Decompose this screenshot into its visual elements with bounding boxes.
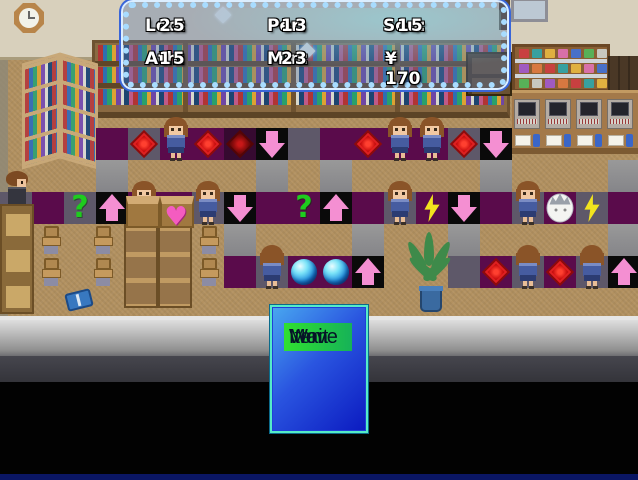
shelf-item	[519, 79, 529, 88]
lightning-bolt-icon	[423, 194, 441, 222]
student-sprite	[196, 181, 220, 225]
shelf-item	[558, 79, 568, 88]
shelf-item	[584, 64, 594, 73]
angled-bookshelf	[22, 58, 98, 172]
shelf-item	[545, 49, 555, 58]
bottom-border	[0, 474, 638, 480]
merchandise-shelf	[512, 44, 610, 92]
school-desk	[126, 196, 160, 228]
stat-value: 25	[159, 16, 187, 36]
school-chair	[198, 226, 222, 256]
path-connector-tile	[608, 160, 638, 192]
game-screen: Loo: 25 Per: 13 Sou: 15 Ath: 15 Min: 23 …	[0, 0, 638, 480]
pink-down-arrow-icon	[258, 130, 286, 158]
board-tile	[576, 192, 608, 224]
sky-window	[511, 0, 548, 22]
bottle-item	[533, 134, 540, 147]
shelf-item	[597, 49, 607, 58]
paper-stack	[515, 135, 531, 146]
red-diamond-icon	[130, 130, 158, 158]
shelf-item	[545, 64, 555, 73]
computer-kiosk	[514, 99, 540, 129]
board-tile	[288, 128, 320, 160]
left-cabinet	[0, 204, 34, 314]
student-sprite-back	[580, 245, 604, 289]
menu-item-label: Item	[289, 325, 328, 349]
board-tile	[448, 192, 480, 224]
potted-plant	[408, 230, 454, 316]
green-question-icon: ?	[295, 193, 312, 223]
pink-down-arrow-icon	[482, 130, 510, 158]
school-chair	[92, 226, 116, 256]
board-tile	[480, 128, 512, 160]
red-diamond-icon	[194, 130, 222, 158]
shelf-item	[532, 79, 542, 88]
student-sprite	[388, 181, 412, 225]
board-tile	[192, 128, 224, 160]
paper-stack	[546, 135, 562, 146]
pink-down-arrow-icon	[450, 194, 478, 222]
money-value: ¥ 170	[385, 49, 420, 89]
path-connector-tile	[96, 160, 128, 192]
shelf-item	[519, 64, 529, 73]
path-connector-tile	[256, 160, 288, 192]
red-diamond-icon	[354, 130, 382, 158]
board-tile	[96, 128, 128, 160]
pink-heart-icon: ♥	[164, 204, 187, 230]
computer-kiosk	[607, 99, 633, 129]
shelf-item	[519, 49, 529, 58]
board-tile	[320, 128, 352, 160]
board-tile	[480, 192, 512, 224]
stat-value: 23	[281, 49, 309, 69]
white-face-icon	[547, 194, 574, 223]
board-tile	[224, 256, 256, 288]
student-sprite	[420, 117, 444, 161]
paper-stack	[608, 135, 624, 146]
lightning-bolt-icon	[583, 194, 601, 222]
shelf-item	[584, 79, 594, 88]
pink-up-arrow-icon	[610, 258, 638, 286]
board-tile	[32, 192, 64, 224]
board-tile	[288, 256, 320, 288]
path-connector-tile	[608, 224, 638, 256]
shelf-item	[545, 79, 555, 88]
pink-up-arrow-icon	[322, 194, 350, 222]
path-connector-tile	[480, 160, 512, 192]
board-tile	[608, 192, 638, 224]
pink-up-arrow-icon	[354, 258, 382, 286]
shelf-item	[597, 64, 607, 73]
student-sprite-back	[260, 245, 284, 289]
student-sprite	[164, 117, 188, 161]
shelf-item	[571, 49, 581, 58]
board-tile	[544, 192, 576, 224]
wall-clock-icon	[14, 3, 44, 33]
pink-up-arrow-icon	[98, 194, 126, 222]
student-sprite-back	[516, 245, 540, 289]
machine-counter	[512, 90, 638, 154]
green-question-icon: ?	[71, 193, 88, 223]
computer-kiosk	[545, 99, 571, 129]
dark-red-diamond-icon	[226, 130, 254, 158]
shelf-item	[584, 49, 594, 58]
board-tile	[352, 256, 384, 288]
board-tile	[608, 256, 638, 288]
path-connector-tile	[352, 224, 384, 256]
shelf-item	[571, 79, 581, 88]
shelf-item	[532, 49, 542, 58]
school-chair	[40, 226, 64, 256]
board-tile: ?	[64, 192, 96, 224]
board-tile	[128, 128, 160, 160]
board-tile	[96, 192, 128, 224]
school-chair	[198, 258, 222, 288]
board-tile	[416, 192, 448, 224]
pink-down-arrow-icon	[226, 194, 254, 222]
bottle-item	[626, 134, 633, 147]
board-tile	[320, 192, 352, 224]
student-sprite	[516, 181, 540, 225]
shelf-item	[532, 64, 542, 73]
board-tile	[352, 128, 384, 160]
board-tile	[544, 256, 576, 288]
path-connector-tile	[224, 224, 256, 256]
board-tile	[448, 128, 480, 160]
board-tile	[320, 256, 352, 288]
path-connector-tile	[320, 160, 352, 192]
school-chair	[92, 258, 116, 288]
stat-value: 15	[159, 49, 187, 69]
paper-stack	[577, 135, 593, 146]
board-tile: ?	[288, 192, 320, 224]
red-diamond-icon	[450, 130, 478, 158]
school-chair	[40, 258, 64, 288]
blue-orb-icon	[323, 259, 349, 285]
board-tile	[224, 192, 256, 224]
board-tile	[256, 128, 288, 160]
low-bookshelf	[124, 224, 192, 308]
blue-orb-icon	[291, 259, 317, 285]
board-tile	[224, 128, 256, 160]
menu-item-item[interactable]: Item	[272, 322, 366, 354]
shelf-item	[571, 64, 581, 73]
red-diamond-icon	[546, 258, 574, 286]
board-tile	[480, 256, 512, 288]
stat-value: 15	[397, 16, 425, 36]
red-diamond-icon	[482, 258, 510, 286]
student-sprite	[388, 117, 412, 161]
shelf-item	[558, 64, 568, 73]
shelf-item	[597, 79, 607, 88]
stat-value: 13	[281, 16, 309, 36]
bottle-item	[564, 134, 571, 147]
command-menu: Move Wait Item	[270, 305, 368, 433]
bottle-item	[595, 134, 602, 147]
status-window: Loo: 25 Per: 13 Sou: 15 Ath: 15 Min: 23 …	[123, 2, 507, 88]
board-tile	[256, 192, 288, 224]
board-tile	[352, 192, 384, 224]
computer-kiosk	[576, 99, 602, 129]
shelf-item	[558, 49, 568, 58]
